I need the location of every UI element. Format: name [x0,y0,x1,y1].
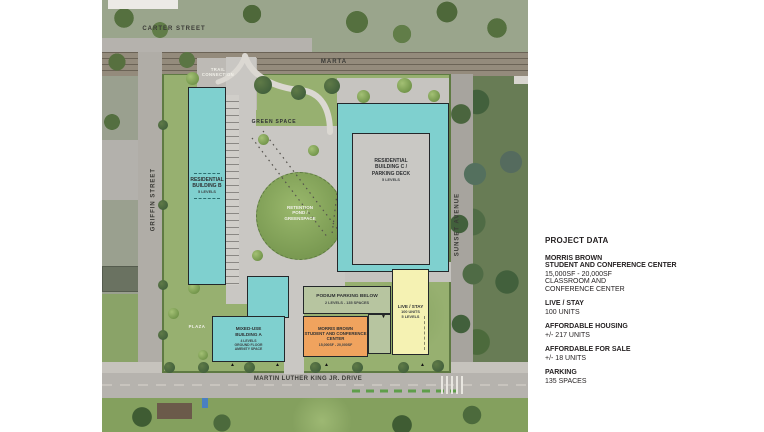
mlk-drive-label: MARTIN LUTHER KING JR. DRIVE [230,376,386,383]
section-header: AFFORDABLE HOUSING [545,323,755,330]
tree [308,145,319,156]
podium-parking: PODIUM PARKING BELOW 2 LEVELS - 135 SPAC… [303,286,391,314]
section-body: +/- 217 UNITS [545,332,755,339]
section-header: MORRIS BROWN STUDENT AND CONFERENCE CENT… [545,255,755,270]
podium-parking-east-wing [368,314,391,354]
live-stay-label: LIVE / STAY [398,304,424,310]
mixed-use-a-label: MIXED-USE BUILDING A [235,326,262,337]
marta-label: MARTA [314,59,354,66]
retention-pond-label: RETENTION POND / GREENSPACE [270,205,330,221]
sunset-avenue-label: SUNSET AVENUE [454,185,461,265]
live-stay-details: 100 UNITS 5 LEVELS [401,310,420,320]
section-body: 135 SPACES [545,378,755,385]
section-header: AFFORDABLE FOR SALE [545,346,755,353]
site-marker-triangle-down: ▼ [381,315,386,320]
site-marker-triangle: ▲ [275,363,280,368]
building-c-levels: 5 LEVELS [372,178,410,183]
project-data-section: AFFORDABLE HOUSING +/- 217 UNITS [545,323,755,339]
site-marker-triangle: ▲ [420,363,425,368]
street-tree [158,330,168,340]
project-data-section: MORRIS BROWN STUDENT AND CONFERENCE CENT… [545,255,755,293]
podium-parking-details: 2 LEVELS - 135 SPACES [325,301,369,306]
tree [291,85,306,100]
morris-brown-details: 15,000SF - 20,000SF [319,343,352,348]
tree [428,90,440,102]
project-data-section: PARKING 135 SPACES [545,369,755,385]
tree [397,78,412,93]
tree [258,134,269,145]
street-tree [158,200,168,210]
building-c-label: RESIDENTIAL BUILDING C / PARKING DECK [372,158,410,177]
green-space-label: GREEN SPACE [244,119,304,125]
street-tree [244,362,255,373]
section-header: LIVE / STAY [545,300,755,307]
tree [254,76,272,94]
building-b-label: RESIDENTIAL BUILDING B [190,177,223,190]
project-data-panel: PROJECT DATA MORRIS BROWN STUDENT AND CO… [545,236,755,392]
plaza-label: PLAZA [182,324,212,329]
building-b-levels: 5 LEVELS [198,190,216,195]
project-data-section: AFFORDABLE FOR SALE +/- 18 UNITS [545,346,755,362]
trail-connection-label: TRAIL CONNECTION [198,67,238,77]
facade-dash-top [194,173,220,174]
carter-street-label: CARTER STREET [138,26,210,33]
project-data-section: LIVE / STAY 100 UNITS [545,300,755,316]
street-tree [432,360,444,372]
street-tree [310,362,321,373]
facade-dash-bottom [194,198,220,199]
section-body: +/- 18 UNITS [545,355,755,362]
site-marker-triangle: ▲ [230,363,235,368]
section-body: 100 UNITS [545,309,755,316]
street-tree [164,362,175,373]
project-data-title: PROJECT DATA [545,236,755,245]
site-marker-triangle: ▲ [324,363,329,368]
site-plan: RESIDENTIAL BUILDING B 5 LEVELS RESIDENT… [102,0,528,432]
tree [168,308,179,319]
section-body: 15,000SF - 20,000SF CLASSROOM AND CONFER… [545,271,755,293]
morris-brown-label: MORRIS BROWN STUDENT AND CONFERENCE CENT… [305,326,367,342]
building-residential-b: RESIDENTIAL BUILDING B 5 LEVELS [188,87,226,285]
tree [252,250,263,261]
morris-brown-center: MORRIS BROWN STUDENT AND CONFERENCE CENT… [303,316,368,357]
building-c-label-wrap: RESIDENTIAL BUILDING C / PARKING DECK 5 … [372,158,410,183]
building-mixed-use-a-upper [247,276,289,318]
live-stay-dash-detail [423,316,425,350]
tree [324,78,340,94]
street-tree [352,362,363,373]
griffin-street-label: GRIFFIN STREET [150,160,157,240]
podium-parking-label: PODIUM PARKING BELOW [316,294,377,300]
screenshot-root: RESIDENTIAL BUILDING B 5 LEVELS RESIDENT… [0,0,764,432]
street-tree [158,120,168,130]
building-c-parking-deck: RESIDENTIAL BUILDING C / PARKING DECK 5 … [352,133,430,265]
tree [198,350,208,360]
building-mixed-use-a: MIXED-USE BUILDING A 4 LEVELS GROUND FLO… [212,316,285,362]
street-tree [398,362,409,373]
street-tree [158,280,168,290]
building-live-stay: LIVE / STAY 100 UNITS 5 LEVELS [392,269,429,355]
mixed-use-a-details: 4 LEVELS GROUND FLOOR AMENITY SPACE [235,339,263,352]
street-tree [198,362,209,373]
section-header: PARKING [545,369,755,376]
tree [357,90,370,103]
